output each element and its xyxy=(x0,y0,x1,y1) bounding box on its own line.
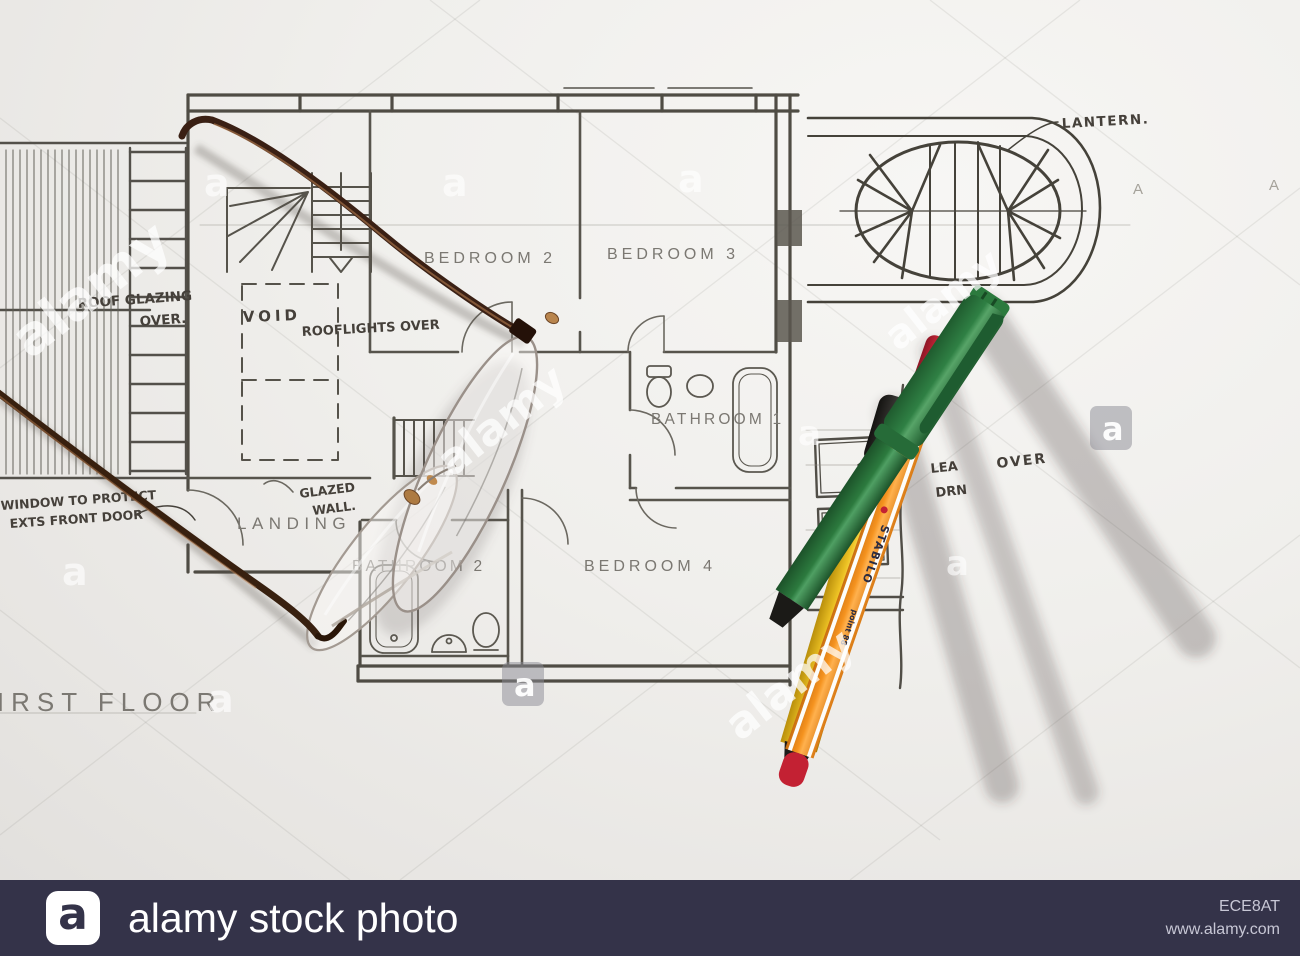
watermark-a-letter: a xyxy=(946,544,969,584)
watermark-a-box: a xyxy=(502,662,544,706)
watermark-a-letter: a xyxy=(204,161,230,205)
note-frag-lea: LEA xyxy=(930,459,959,477)
alamy-brand-text: alamy stock photo xyxy=(128,895,458,942)
note-void: VOID xyxy=(243,306,302,326)
label-first-floor: FIRST FLOOR xyxy=(0,687,222,717)
note-lantern: LANTERN. xyxy=(1061,111,1149,132)
photo-area: BEDROOM 2 BEDROOM 3 BATHROOM 1 BEDROOM 4… xyxy=(0,0,1300,880)
alamy-logo: a xyxy=(46,891,100,945)
watermark-a-letter: a xyxy=(62,550,88,594)
svg-text:a: a xyxy=(514,666,536,704)
watermark-a-letter: a xyxy=(798,414,821,454)
watermark-a-letter: a xyxy=(208,677,234,721)
svg-text:a: a xyxy=(1102,410,1124,448)
alamy-footer-bar: a alamy stock photo ECE8AT www.alamy.com xyxy=(0,880,1300,956)
label-landing: LANDING xyxy=(237,514,351,533)
footer-right-block: ECE8AT www.alamy.com xyxy=(1166,898,1280,939)
alamy-url: www.alamy.com xyxy=(1166,921,1280,939)
label-bedroom4: BEDROOM 4 xyxy=(584,558,716,575)
label-bathroom1: BATHROOM 1 xyxy=(651,411,784,428)
stock-photo-page: BEDROOM 2 BEDROOM 3 BATHROOM 1 BEDROOM 4… xyxy=(0,0,1300,956)
alamy-logo-letter: a xyxy=(58,893,88,937)
section-marker-a-left: A xyxy=(1133,181,1143,198)
watermark-a-letter: a xyxy=(678,157,704,201)
note-frag-drn: DRN xyxy=(935,483,968,501)
floor-plan-photo: BEDROOM 2 BEDROOM 3 BATHROOM 1 BEDROOM 4… xyxy=(0,0,1300,880)
label-bedroom2: BEDROOM 2 xyxy=(424,250,556,267)
label-bedroom3: BEDROOM 3 xyxy=(607,246,739,263)
section-marker-a-right: A xyxy=(1269,177,1279,194)
note-roof-glazing-2: OVER. xyxy=(139,311,187,330)
watermark-a-box: a xyxy=(1090,406,1132,450)
watermark-a-letter: a xyxy=(442,161,468,205)
image-id: ECE8AT xyxy=(1219,898,1280,916)
